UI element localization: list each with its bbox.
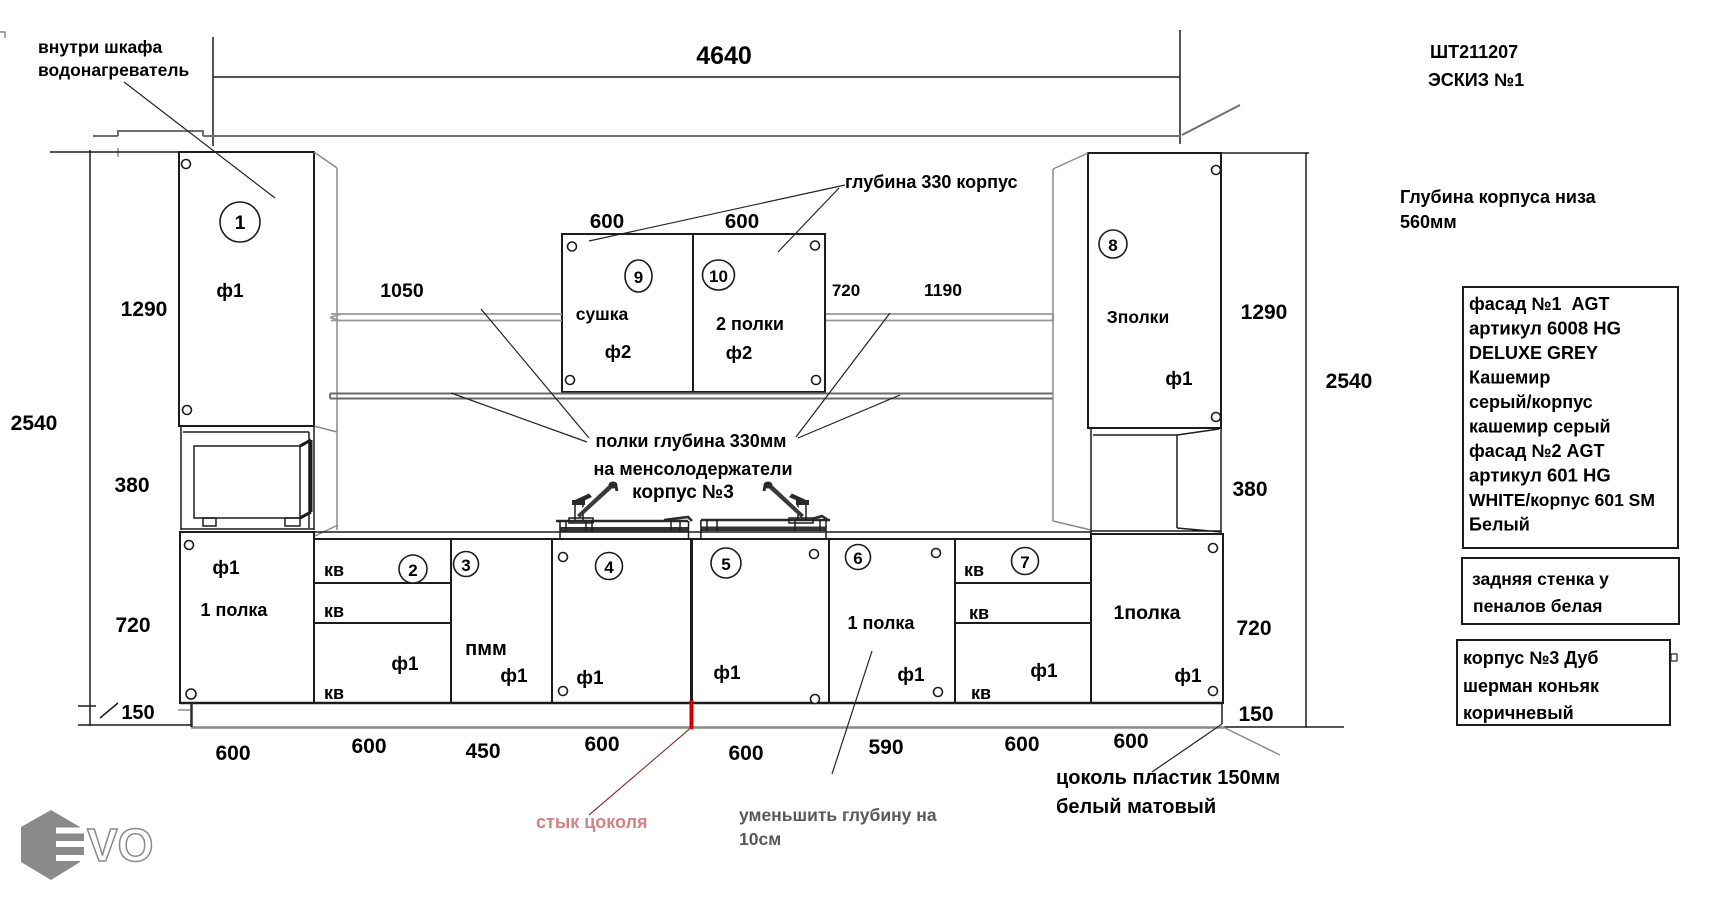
svg-text:белый матовый: белый матовый	[1056, 796, 1216, 818]
svg-text:1 полка: 1 полка	[848, 613, 916, 633]
svg-text:720: 720	[115, 614, 150, 637]
svg-text:Кашемир: Кашемир	[1469, 368, 1550, 388]
svg-text:380: 380	[1232, 478, 1267, 501]
svg-text:1290: 1290	[1241, 301, 1288, 324]
svg-text:глубина 330 корпус: глубина 330 корпус	[845, 172, 1018, 192]
svg-text:сушка: сушка	[576, 304, 629, 324]
svg-text:Белый: Белый	[1469, 515, 1530, 535]
svg-text:590: 590	[868, 736, 903, 759]
svg-text:2540: 2540	[11, 412, 58, 435]
svg-text:пмм: пмм	[465, 638, 507, 660]
svg-text:ф2: ф2	[605, 341, 631, 362]
svg-text:ф1: ф1	[1174, 666, 1202, 687]
svg-text:фасад №2 AGT: фасад №2 AGT	[1469, 441, 1605, 461]
svg-text:600: 600	[351, 735, 386, 758]
svg-text:3: 3	[461, 556, 470, 575]
svg-text:коричневый: коричневый	[1463, 703, 1574, 723]
svg-text:6: 6	[853, 549, 862, 568]
svg-text:кв: кв	[324, 683, 344, 703]
svg-text:ШТ211207: ШТ211207	[1430, 42, 1518, 62]
svg-text:задняя стенка у: задняя стенка у	[1472, 569, 1609, 589]
svg-text:стык цоколя: стык цоколя	[536, 812, 648, 832]
svg-text:9: 9	[634, 268, 643, 287]
svg-text:ф1: ф1	[897, 665, 925, 686]
svg-text:720: 720	[832, 281, 860, 300]
svg-text:кв: кв	[969, 603, 989, 623]
svg-text:пеналов белая: пеналов белая	[1473, 596, 1602, 616]
svg-text:ф1: ф1	[391, 654, 419, 675]
svg-text:ф1: ф1	[713, 663, 741, 684]
svg-text:10см: 10см	[739, 829, 781, 849]
svg-text:600: 600	[1113, 730, 1148, 753]
svg-text:8: 8	[1108, 236, 1117, 255]
svg-text:150: 150	[121, 702, 154, 724]
svg-text:артикул 601 HG: артикул 601 HG	[1469, 465, 1611, 486]
svg-text:ф1: ф1	[576, 668, 604, 689]
svg-text:ф2: ф2	[726, 342, 752, 363]
svg-text:ф1: ф1	[212, 558, 240, 579]
svg-text:ЭСКИЗ №1: ЭСКИЗ №1	[1428, 70, 1524, 90]
svg-text:600: 600	[215, 742, 250, 765]
svg-text:1: 1	[235, 213, 246, 234]
svg-text:10: 10	[709, 267, 728, 286]
svg-text:1полка: 1полка	[1113, 602, 1180, 624]
svg-text:корпус №3: корпус №3	[632, 482, 734, 503]
svg-text:4: 4	[604, 558, 614, 577]
svg-text:серый/корпус: серый/корпус	[1469, 392, 1593, 412]
svg-text:380: 380	[114, 474, 149, 497]
svg-text:водонагреватель: водонагреватель	[38, 60, 189, 80]
svg-text:720: 720	[1236, 617, 1271, 640]
svg-text:кв: кв	[324, 601, 344, 621]
svg-text:600: 600	[1004, 733, 1039, 756]
svg-text:1050: 1050	[380, 280, 424, 302]
svg-text:уменьшить глубину на: уменьшить глубину на	[739, 805, 937, 825]
svg-text:2: 2	[408, 561, 417, 580]
svg-text:кв: кв	[971, 683, 991, 703]
svg-text:600: 600	[725, 210, 759, 233]
svg-text:2 полки: 2 полки	[716, 314, 784, 334]
svg-text:1190: 1190	[924, 280, 962, 300]
svg-text:5: 5	[721, 555, 730, 574]
svg-text:7: 7	[1020, 553, 1029, 572]
svg-text:внутри шкафа: внутри шкафа	[38, 37, 163, 57]
svg-text:450: 450	[465, 740, 500, 763]
svg-text:на менсолодержатели: на менсолодержатели	[593, 459, 792, 479]
svg-text:артикул 6008 HG: артикул 6008 HG	[1469, 318, 1621, 339]
svg-text:ф1: ф1	[1030, 661, 1058, 682]
svg-text:кв: кв	[964, 560, 984, 580]
svg-text:2540: 2540	[1326, 370, 1373, 393]
svg-text:шерман коньяк: шерман коньяк	[1463, 676, 1600, 696]
svg-text:ф1: ф1	[500, 666, 528, 687]
svg-text:WHITE/корпус 601 SM: WHITE/корпус 601 SM	[1469, 490, 1655, 510]
svg-text:фасад №1 AGT: фасад №1 AGT	[1469, 294, 1610, 314]
svg-text:кв: кв	[324, 560, 344, 580]
svg-text:4640: 4640	[696, 42, 752, 70]
svg-text:560мм: 560мм	[1400, 212, 1457, 232]
svg-text:VO: VO	[87, 819, 153, 871]
svg-text:ф1: ф1	[1165, 369, 1193, 390]
svg-text:1290: 1290	[121, 298, 168, 321]
svg-text:600: 600	[584, 733, 619, 756]
svg-text:600: 600	[728, 742, 763, 765]
svg-text:1 полка: 1 полка	[201, 600, 269, 620]
svg-text:Глубина корпуса низа: Глубина корпуса низа	[1400, 187, 1597, 207]
svg-text:цоколь пластик 150мм: цоколь пластик 150мм	[1056, 767, 1280, 789]
svg-text:Зполки: Зполки	[1107, 307, 1169, 327]
svg-text:150: 150	[1238, 703, 1273, 726]
svg-text:ф1: ф1	[216, 281, 244, 302]
svg-text:кашемир серый: кашемир серый	[1469, 417, 1611, 437]
svg-text:полки глубина 330мм: полки глубина 330мм	[596, 431, 787, 451]
svg-text:600: 600	[590, 210, 624, 233]
svg-text:корпус №3 Дуб: корпус №3 Дуб	[1463, 648, 1598, 668]
svg-text:DELUXE GREY: DELUXE GREY	[1469, 343, 1598, 363]
